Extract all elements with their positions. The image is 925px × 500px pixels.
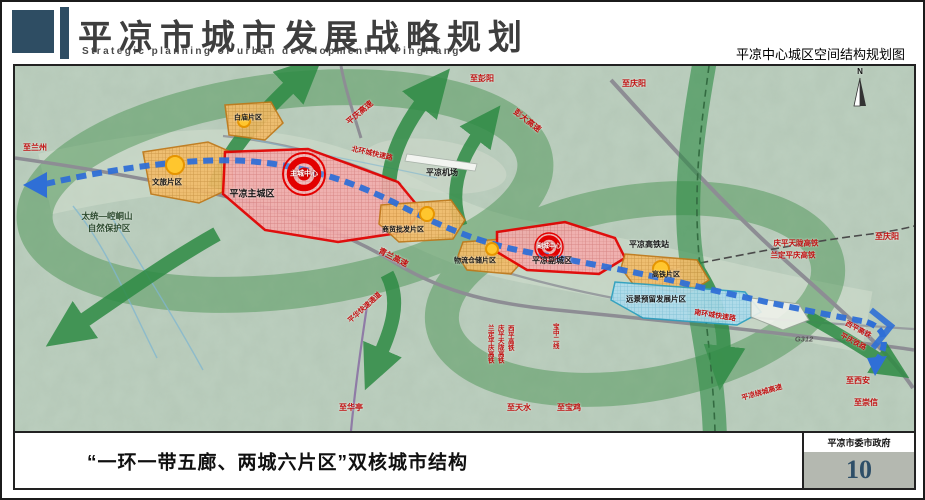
label-to-tianshui: 至天水 [507, 404, 531, 412]
label-v-ldpq-hsr: 兰定平庆高铁 [486, 325, 493, 364]
logo-divider-bar [60, 7, 69, 59]
label-to-baoji: 至宝鸡 [557, 404, 581, 412]
footer-caption: “一环一带五廊、两城六片区”双核城市结构 [87, 447, 468, 474]
footer-bar: “一环一带五廊、两城六片区”双核城市结构 平凉市委市政府 10 [13, 433, 916, 490]
label-to-qingyang-top: 至庆阳 [622, 80, 646, 88]
zone-shangmao [379, 200, 465, 242]
label-main-core: 主城中心 [290, 171, 318, 178]
label-ldpq-hsr: 兰定平庆高铁 [771, 251, 816, 259]
label-gaotie-zone: 高铁片区 [652, 272, 680, 279]
compass-n-label: N [857, 68, 863, 76]
map-caption: 平凉中心城区空间结构规划图 [736, 44, 905, 63]
label-to-lanzhou: 至兰州 [23, 144, 47, 152]
label-wuliu-zone: 物流仓储片区 [454, 258, 496, 265]
label-sub-city: 平凉副城区 [532, 257, 572, 265]
organization-box: 平凉市委市政府 10 [802, 433, 914, 488]
label-to-qingyang-right: 至庆阳 [875, 233, 899, 241]
label-yuanjing-zone: 远景预留发展片区 [626, 295, 686, 303]
label-shangmao-zone: 商贸批发片区 [382, 227, 424, 234]
label-v-xiping-hsr: 西平高铁 [506, 325, 513, 351]
label-qptl-hsr: 庆平天陇高铁 [774, 239, 819, 247]
page-subtitle-en: Strategic planning of urban development … [82, 46, 461, 57]
page-number: 10 [804, 452, 914, 488]
label-wenlv-zone: 文旅片区 [152, 178, 182, 186]
label-nature-reserve-1: 太统—崆峒山 [81, 212, 132, 221]
label-to-xian: 至西安 [846, 377, 870, 385]
label-to-chongxin: 至崇信 [854, 399, 878, 407]
label-g312: G312 [795, 335, 813, 343]
organization-name: 平凉市委市政府 [804, 433, 914, 453]
logo-block [12, 10, 54, 53]
label-hsr-station: 平凉高铁站 [629, 241, 669, 249]
document-page: 平凉市城市发展战略规划 Strategic planning of urban … [0, 0, 925, 500]
label-airport: 平凉机场 [426, 169, 458, 177]
label-main-city: 平凉主城区 [229, 190, 274, 199]
label-baimiao-zone: 白庙片区 [234, 115, 262, 122]
label-nature-reserve-2: 自然保护区 [88, 224, 131, 233]
label-to-huating: 至华亭 [339, 404, 363, 412]
map-graphics [15, 66, 914, 431]
label-v-qptl-hsr: 庆平天陇高铁 [496, 325, 503, 364]
label-sub-core: 副城中心 [537, 244, 561, 250]
label-v-baozhong-line: 宝中二线 [551, 323, 558, 349]
planning-map: 至兰州 白庙片区 平庆高速 至彭阳 彭大高速 至庆阳 北环城快速路 文旅片区 平… [13, 64, 916, 433]
zone-wenlv [143, 142, 233, 203]
label-to-pengyang: 至彭阳 [470, 75, 494, 83]
